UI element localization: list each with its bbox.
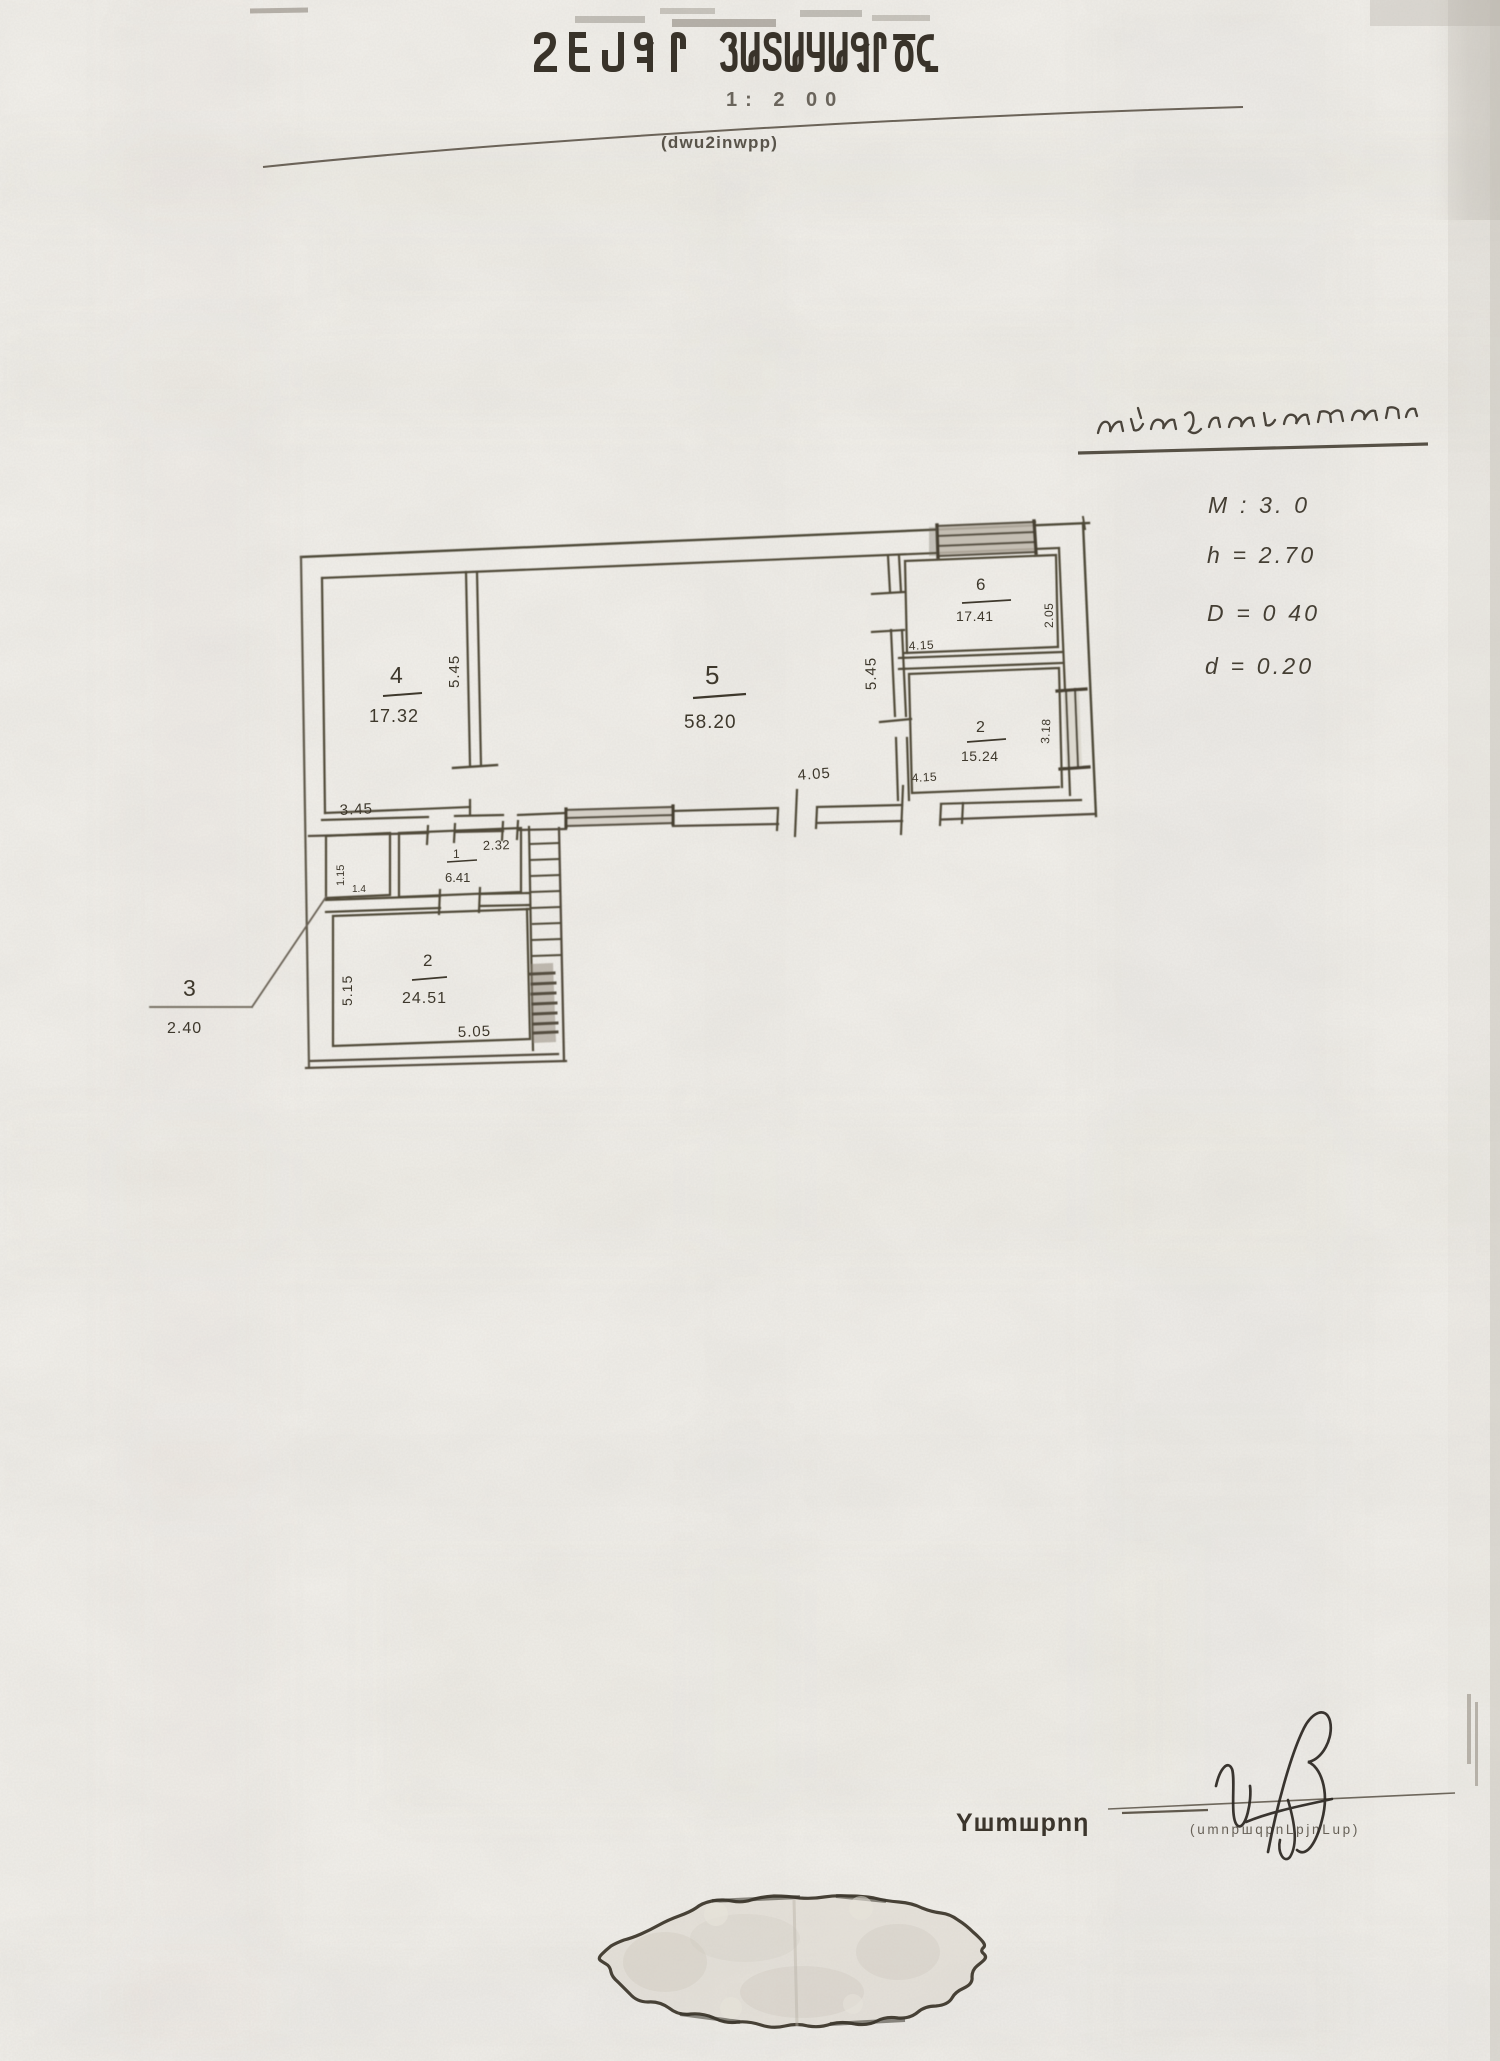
- svg-text:2: 2: [423, 951, 432, 970]
- svg-text:1: 1: [453, 847, 460, 861]
- svg-text:5.05: 5.05: [458, 1023, 492, 1041]
- svg-text:6: 6: [976, 575, 985, 594]
- svg-text:3.45: 3.45: [339, 800, 373, 819]
- svg-text:h = 2.70: h = 2.70: [1207, 542, 1316, 568]
- svg-text:Yшmшpnη: Yшmшpnη: [956, 1809, 1089, 1837]
- svg-text:3: 3: [183, 975, 196, 1001]
- svg-text:2.32: 2.32: [483, 837, 511, 853]
- svg-text:1.15: 1.15: [335, 865, 347, 886]
- svg-text:3.18: 3.18: [1038, 718, 1053, 744]
- svg-text:5: 5: [705, 660, 719, 690]
- svg-text:2.05: 2.05: [1042, 603, 1056, 628]
- svg-text:4: 4: [390, 662, 403, 688]
- svg-text:24.51: 24.51: [402, 990, 447, 1007]
- svg-text:M : 3. 0: M : 3. 0: [1208, 492, 1310, 518]
- svg-text:15.24: 15.24: [961, 748, 999, 764]
- svg-text:5.45: 5.45: [446, 655, 463, 688]
- svg-text:17.41: 17.41: [956, 608, 994, 624]
- svg-text:D = 0 40: D = 0 40: [1207, 600, 1320, 626]
- svg-text:4.05: 4.05: [797, 765, 831, 784]
- svg-text:6.41: 6.41: [445, 870, 470, 885]
- svg-text:17.32: 17.32: [369, 706, 419, 726]
- svg-text:2: 2: [976, 719, 985, 736]
- svg-text:5.15: 5.15: [339, 975, 355, 1006]
- svg-text:4.15: 4.15: [911, 770, 937, 785]
- svg-text:d = 0.20: d = 0.20: [1205, 653, 1314, 679]
- svg-text:1: 2 00: 1: 2 00: [726, 89, 844, 111]
- svg-text:1.4: 1.4: [352, 884, 366, 895]
- svg-text:2.40: 2.40: [167, 1020, 202, 1037]
- svg-text:5.45: 5.45: [862, 657, 880, 690]
- svg-text:58.20: 58.20: [684, 712, 737, 733]
- svg-text:4.15: 4.15: [908, 638, 934, 653]
- svg-text:(dwu2inwpp): (dwu2inwpp): [661, 133, 778, 152]
